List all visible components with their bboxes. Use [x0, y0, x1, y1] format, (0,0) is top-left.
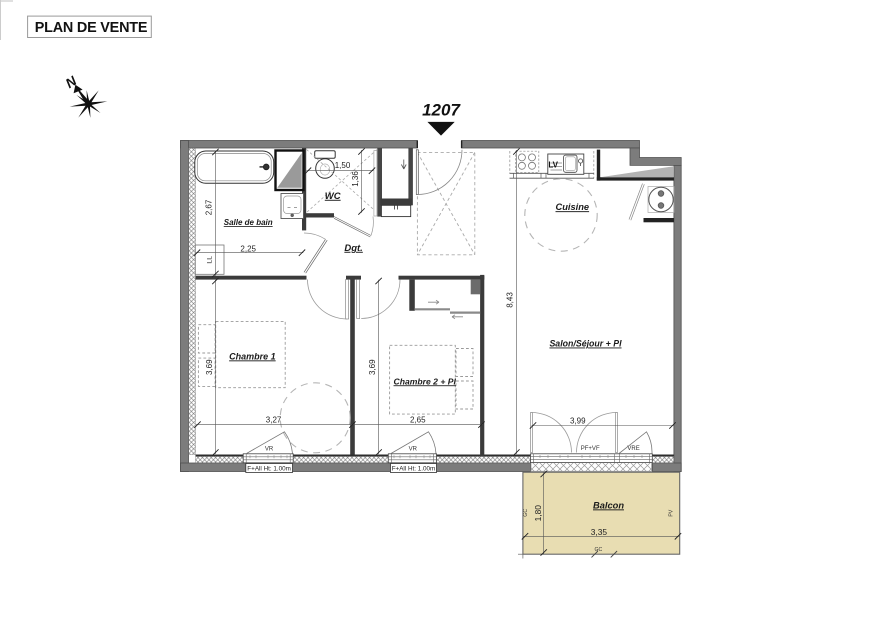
svg-text:Dgt.: Dgt.	[344, 243, 362, 254]
svg-text:Cuisine: Cuisine	[556, 202, 590, 212]
svg-text:GC: GC	[523, 509, 529, 517]
svg-text:1207: 1207	[422, 100, 461, 119]
svg-text:Salon/Séjour + Pl: Salon/Séjour + Pl	[549, 339, 622, 349]
svg-text:F+All Ht: 1.00m: F+All Ht: 1.00m	[392, 465, 436, 472]
svg-text:1,36: 1,36	[351, 171, 360, 187]
svg-text:PV: PV	[668, 509, 674, 516]
svg-text:VR: VR	[265, 447, 274, 453]
svg-text:VR: VR	[409, 447, 418, 453]
svg-text:Chambre 1: Chambre 1	[229, 351, 276, 361]
svg-text:PF+VF: PF+VF	[581, 446, 600, 452]
svg-text:2,65: 2,65	[410, 416, 426, 425]
svg-text:3,99: 3,99	[570, 416, 586, 425]
svg-text:LL: LL	[206, 256, 213, 264]
svg-text:2,67: 2,67	[205, 199, 214, 215]
svg-text:VRE: VRE	[627, 446, 639, 452]
svg-text:3,35: 3,35	[591, 527, 608, 537]
svg-text:1,50: 1,50	[335, 161, 351, 170]
svg-text:PLAN DE VENTE: PLAN DE VENTE	[35, 20, 148, 36]
svg-text:Balcon: Balcon	[593, 500, 624, 510]
svg-text:3,69: 3,69	[368, 359, 377, 375]
svg-text:1,80: 1,80	[533, 505, 543, 522]
svg-text:2,25: 2,25	[240, 245, 256, 254]
svg-text:LV: LV	[548, 160, 558, 169]
svg-text:3,69: 3,69	[205, 359, 214, 375]
svg-text:F+All Ht: 1.00m: F+All Ht: 1.00m	[247, 465, 291, 472]
svg-text:WC: WC	[325, 191, 341, 202]
svg-text:Chambre 2 + Pl: Chambre 2 + Pl	[394, 376, 457, 386]
svg-text:8,43: 8,43	[506, 292, 515, 308]
svg-text:GC: GC	[595, 547, 603, 553]
svg-text:3,27: 3,27	[266, 416, 282, 425]
svg-text:Salle de bain: Salle de bain	[224, 218, 273, 227]
